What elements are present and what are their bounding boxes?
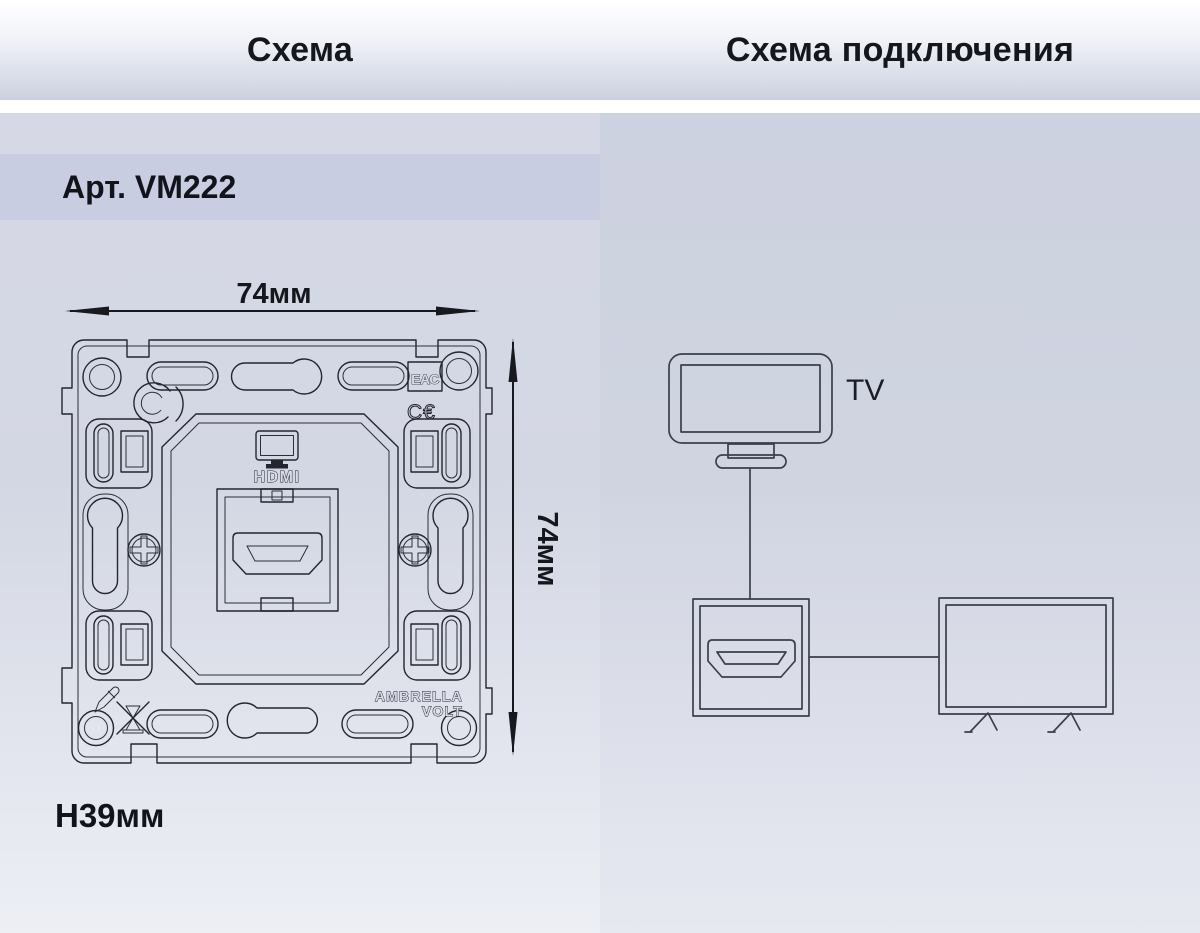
connection-header-label: Схема подключения (726, 31, 1074, 70)
article-band: Арт. VM222 (0, 154, 600, 220)
schema-header-label: Схема (247, 31, 353, 70)
tv-label: TV (846, 374, 884, 408)
column-header-connection: Схема подключения (600, 0, 1200, 100)
connection-panel: TV (600, 113, 1200, 933)
spec-sheet-page: Схема Схема подключения Арт. VM222 H39мм… (0, 0, 1200, 933)
header-divider (0, 100, 1200, 113)
column-header-schema: Схема (0, 0, 600, 100)
mount-height-label: H39мм (55, 797, 164, 835)
schema-panel: Арт. VM222 H39мм (0, 113, 600, 933)
article-label: Арт. VM222 (62, 154, 236, 220)
